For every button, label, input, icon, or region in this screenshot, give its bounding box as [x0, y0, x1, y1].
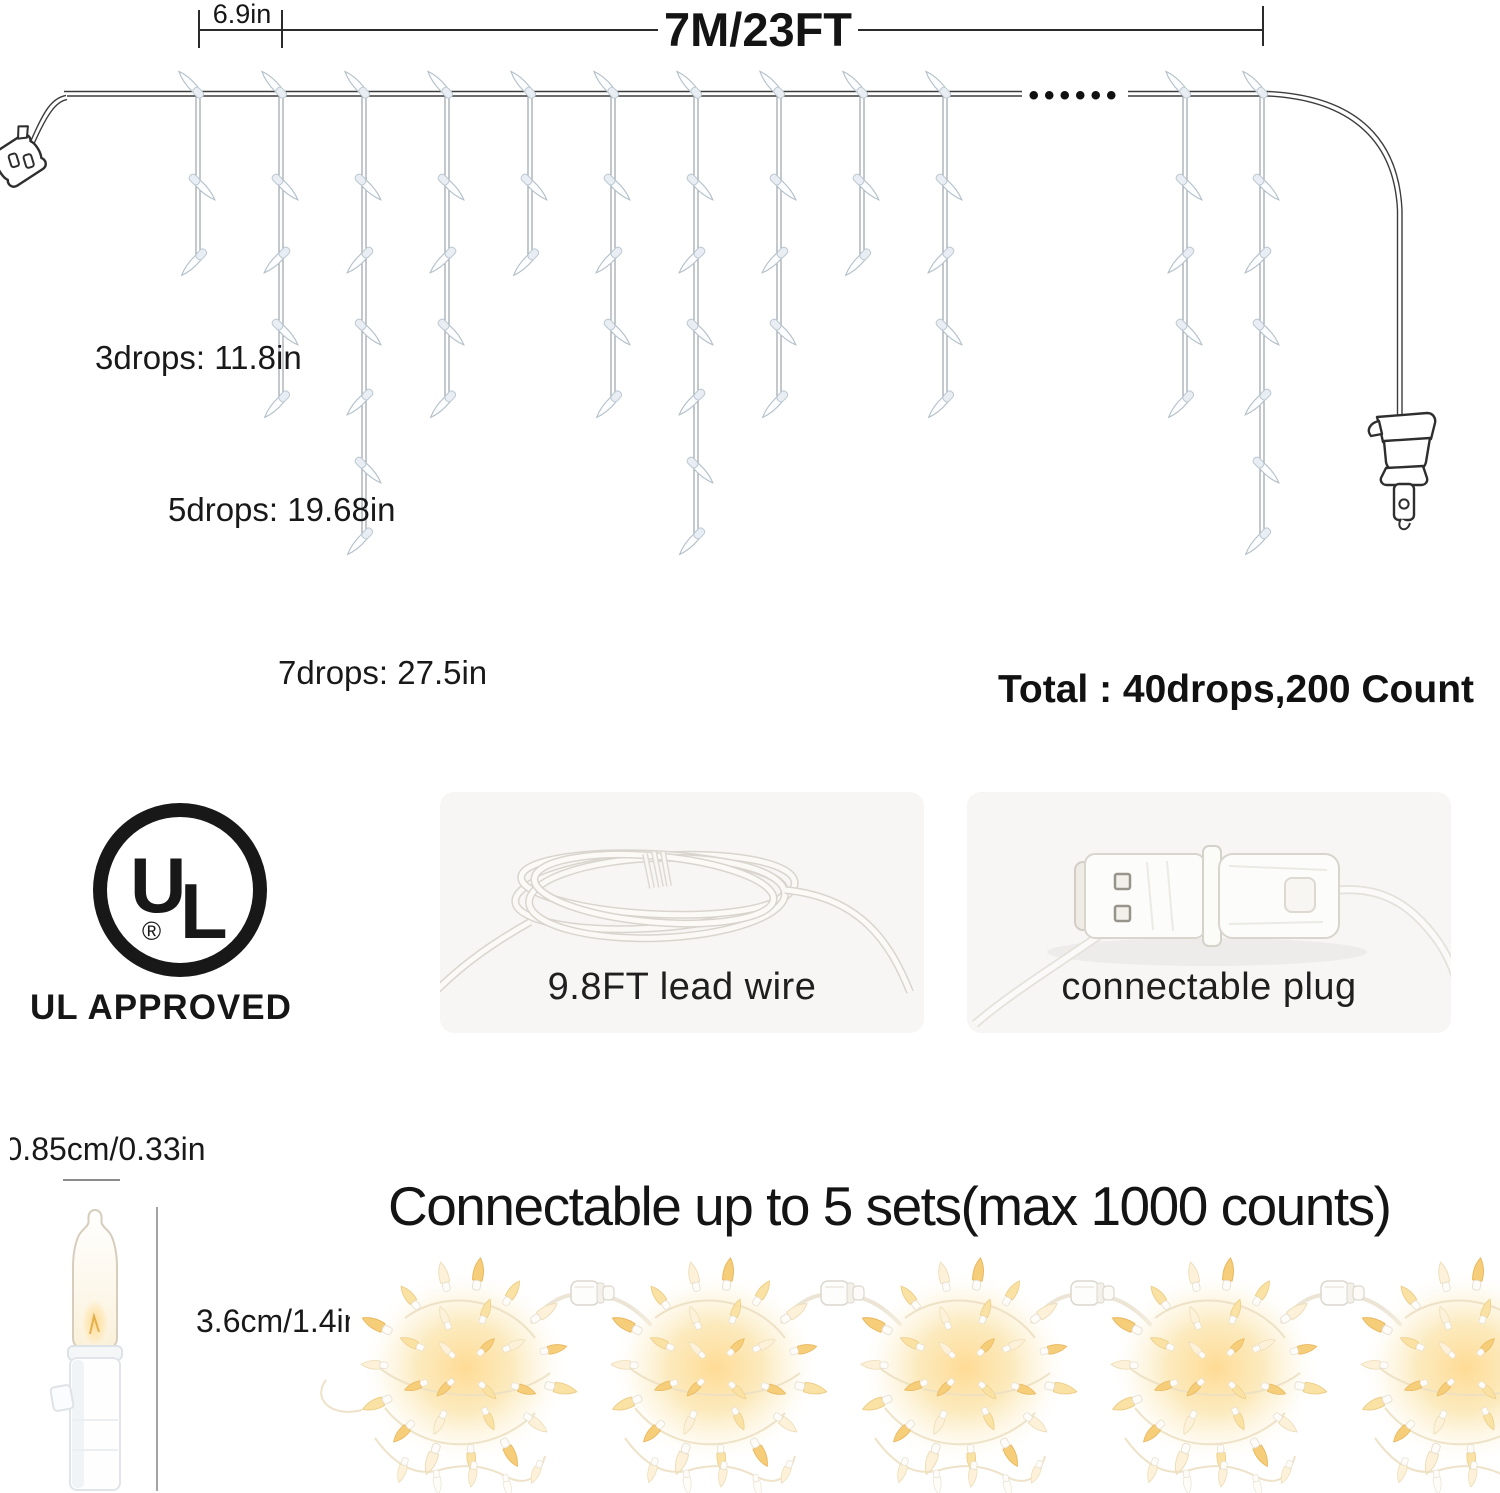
icicle-drop [674, 69, 715, 557]
product-infographic: 6.9in 7M/23FT •••••• [0, 0, 1500, 1493]
spacing-label: 6.9in [213, 0, 272, 29]
connectable-heading: Connectable up to 5 sets(max 1000 counts… [388, 1174, 1390, 1238]
drops3-label: 3drops: 11.8in [95, 339, 302, 376]
icicle-drop [342, 69, 383, 557]
light-cluster [1360, 1257, 1500, 1493]
bulb-width-label: 0.85cm/0.33in [10, 1131, 206, 1167]
icicle-drop [923, 69, 964, 420]
ul-logo-l: L [180, 867, 228, 955]
lead-wire-label: 9.8FT lead wire [440, 966, 924, 1009]
icicle-lights-diagram: 6.9in 7M/23FT •••••• [0, 0, 1500, 745]
drops5-label: 5drops: 19.68in [168, 491, 396, 528]
continuation-dots-icon: •••••• [1028, 79, 1121, 112]
connectable-plug-label: connectable plug [967, 966, 1451, 1009]
icicle-drop [1163, 69, 1204, 420]
lead-wire-card: 9.8FT lead wire [440, 792, 924, 1033]
icicle-drop [508, 69, 549, 278]
connected-light-sets [0, 1240, 1500, 1493]
connectable-plug-card: connectable plug [967, 792, 1451, 1033]
length-label: 7M/23FT [664, 3, 852, 56]
light-cluster [1110, 1257, 1328, 1493]
drops7-label: 7drops: 27.5in [278, 654, 487, 691]
icicle-drop [176, 69, 217, 278]
total-label: Total : 40drops,200 Count [998, 668, 1474, 711]
right-plug-icon [1369, 413, 1435, 529]
light-cluster [860, 1257, 1078, 1493]
ul-logo: U L ® [0, 780, 360, 980]
icicle-drop [1240, 69, 1281, 557]
icicle-drops [176, 69, 1281, 557]
icicle-drop [757, 69, 798, 420]
ul-approved-label: UL APPROVED [30, 988, 350, 1028]
icicle-drop [840, 69, 881, 278]
light-cluster [610, 1257, 828, 1493]
icicle-drop [425, 69, 466, 420]
registered-mark: ® [142, 916, 161, 946]
light-cluster [360, 1257, 578, 1493]
left-plug-icon [0, 122, 52, 189]
icicle-drop [591, 69, 632, 420]
